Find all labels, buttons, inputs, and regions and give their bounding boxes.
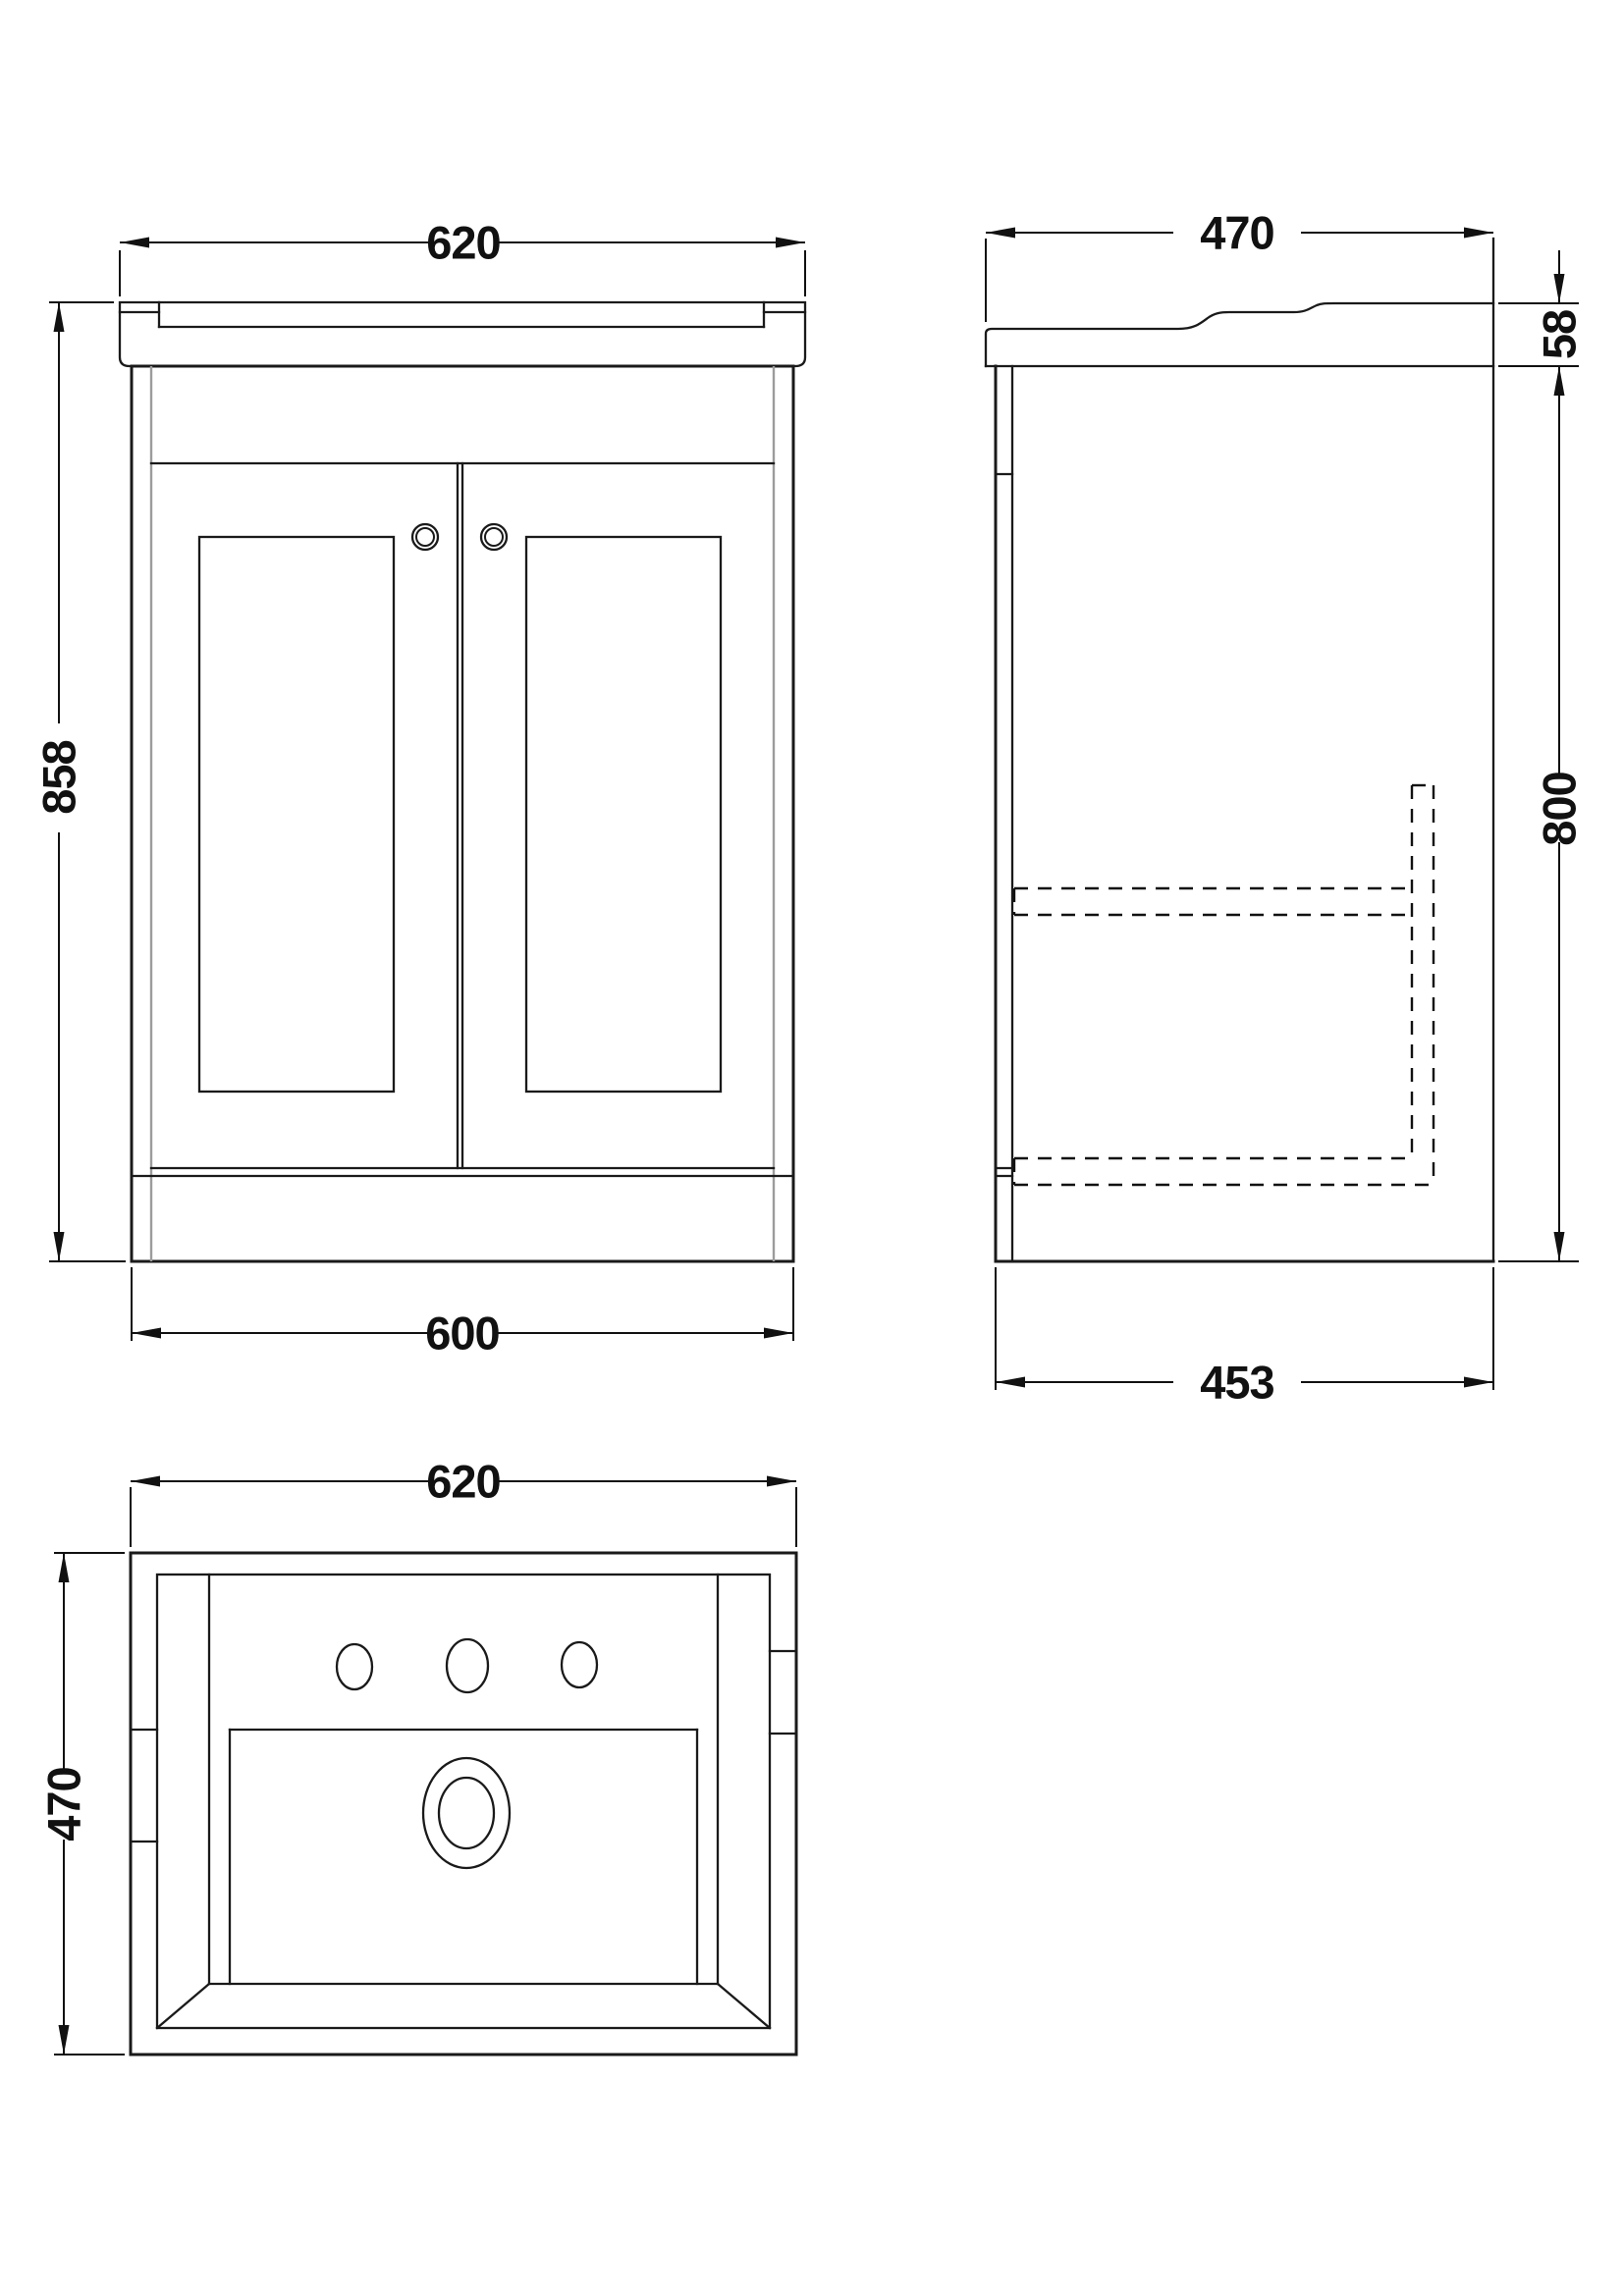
front-dim-width-bottom-label: 600 — [425, 1308, 499, 1360]
plan-waste-outer — [423, 1758, 510, 1868]
front-left-door-panel — [199, 537, 394, 1092]
plan-basin-rim — [157, 1575, 770, 2028]
plan-dim-width-label: 620 — [426, 1456, 500, 1508]
side-hidden-back-panel — [1412, 785, 1434, 1185]
plan-bowl-chamfer-right — [718, 1984, 770, 2028]
plan-dim-depth-label: 470 — [38, 1767, 90, 1841]
front-view: 620 858 600 — [33, 217, 806, 1360]
side-hidden-shelf — [1014, 888, 1410, 915]
front-dim-width-top: 620 — [120, 217, 805, 297]
side-view: 470 58 800 453 — [986, 207, 1586, 1409]
plan-tap-hole-right — [562, 1642, 597, 1687]
front-dim-width-bottom: 600 — [132, 1267, 793, 1360]
side-dim-body-height-label: 800 — [1534, 772, 1586, 845]
front-left-knob-inner — [416, 528, 434, 546]
side-basin-profile — [986, 303, 1493, 366]
vanity-technical-drawing: 620 858 600 — [0, 0, 1623, 2296]
side-dim-depth-bottom-label: 453 — [1200, 1357, 1273, 1409]
side-dim-depth-bottom: 453 — [996, 1267, 1493, 1409]
side-dim-basin-height-label: 58 — [1534, 310, 1586, 359]
side-dim-basin-height: 58 — [1498, 250, 1586, 366]
side-dim-depth-top-label: 470 — [1200, 207, 1273, 259]
front-dim-height: 858 — [33, 302, 127, 1261]
plan-tap-hole-center — [447, 1639, 488, 1692]
side-hidden-bottom-panel — [1014, 1158, 1434, 1185]
front-basin-outline — [120, 302, 805, 366]
plan-bowl-chamfer-left — [157, 1984, 209, 2028]
plan-waste-inner — [439, 1778, 494, 1848]
side-dim-depth-top: 470 — [986, 207, 1493, 323]
front-dim-width-top-label: 620 — [426, 217, 500, 269]
drawing-canvas: 620 858 600 — [0, 0, 1623, 2296]
front-dim-height-label: 858 — [33, 740, 85, 814]
plan-view: 620 470 — [38, 1456, 797, 2056]
front-right-door-panel — [526, 537, 721, 1092]
plan-tap-hole-left — [337, 1644, 372, 1689]
side-dim-body-height: 800 — [1498, 366, 1586, 1261]
plan-dim-depth: 470 — [38, 1553, 126, 2055]
front-right-knob-inner — [485, 528, 503, 546]
plan-dim-width: 620 — [131, 1456, 796, 1548]
